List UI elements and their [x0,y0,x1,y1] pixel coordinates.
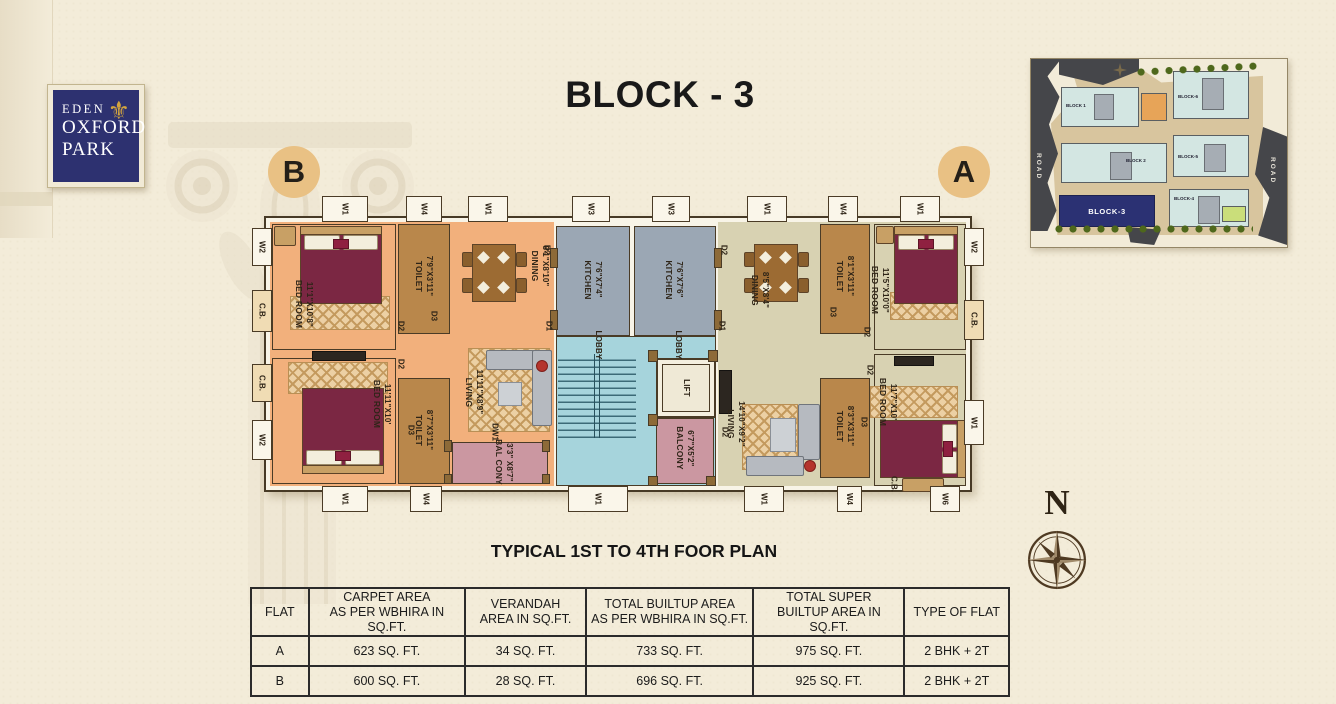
door-d3: D3 [860,417,869,427]
tv-bedroom-b2 [312,351,366,361]
label-bedroom-b2: BED ROOM11'11"X10' [372,380,392,428]
stair-rail [594,354,600,438]
door-d2: D2 [721,427,730,437]
cell-type: 2 BHK + 2T [904,636,1009,666]
label-toilet-a2: TOILET8'3"X3'11" [835,406,855,447]
cell-super-builtup: 925 SQ. FT. [753,666,904,696]
label-living-b: LIVING11'11"X8'9" [464,370,484,415]
cell-builtup: 733 SQ. FT. [586,636,753,666]
compass-rose-icon [1024,527,1090,593]
window-w3: W3 [572,196,610,222]
plant-living-b [536,360,548,372]
cell-super-builtup: 975 SQ. FT. [753,636,904,666]
header-type: TYPE OF FLAT [904,588,1009,636]
flat-b-letter: B [283,154,305,190]
header-carpet: CARPET AREAAS PER WBHIRA IN SQ.FT. [309,588,465,636]
chair-a [798,278,809,293]
label-toilet-a1: TOILET8'1"X3'11" [835,256,855,297]
table-row-flat-b: B 600 SQ. FT. 28 SQ. FT. 696 SQ. FT. 925… [251,666,1009,696]
header-verandah: VERANDAHAREA IN SQ.FT. [465,588,586,636]
header-flat: FLAT [251,588,309,636]
door-d3: D3 [829,307,838,317]
window-w1: W1 [322,486,368,512]
cell-verandah: 34 SQ. FT. [465,636,586,666]
label-bedroom-b1: BED ROOM11'1"X10'8" [294,280,314,328]
label-balcony-common: BALCONY6'7"X5'2" [675,426,695,469]
label-living-a: LIVING14'10"X9'2" [726,401,746,447]
window-w1: W1 [744,486,784,512]
floor-plan-caption: TYPICAL 1ST TO 4TH FOOR PLAN [454,541,814,562]
window-w1: W1 [468,196,508,222]
road-label-left: ROAD [1035,153,1042,180]
page-title: BLOCK - 3 [540,74,780,116]
plant-living-a [804,460,816,472]
cell-carpet: 600 SQ. FT. [309,666,465,696]
chair-b [462,278,473,293]
road-label-right: ROAD [1269,157,1276,184]
header-super-builtup: TOTAL SUPERBUILTUP AREA IN SQ.FT. [753,588,904,636]
coffee-table-b [498,382,522,406]
floor-plan: W1 W4 W1 W3 W3 W1 W4 W1 W1 W4 W1 W1 W4 W… [258,192,998,518]
label-kitchen-a: KITCHEN7'6"X7'6" [664,260,684,299]
label-bedroom-a2: BED ROOM11'7"X10' [878,378,898,426]
chair-b [516,278,527,293]
cell-carpet: 623 SQ. FT. [309,636,465,666]
north-label: N [1022,483,1092,523]
window-w1: W1 [900,196,940,222]
cupboard-cb: C.B. [964,300,984,340]
window-w1: W1 [964,400,984,445]
window-w2: W2 [252,228,272,266]
window-w2: W2 [964,228,984,266]
fleur-de-lis-icon: ⚜ [108,96,130,126]
header-builtup: TOTAL BUILTUP AREAAS PER WBHIRA IN SQ.FT… [586,588,753,636]
door-d2: D2 [720,245,729,255]
nightstand-b1 [274,226,296,246]
door-d3: D3 [430,311,439,321]
tree-row-bottom [1053,223,1253,235]
cell-flat: A [251,636,309,666]
cell-type: 2 BHK + 2T [904,666,1009,696]
window-w4: W4 [406,196,442,222]
label-toilet-b1: TOILET7'9"X3'11" [414,256,434,297]
window-w4: W4 [837,486,862,512]
logo-line-park: PARK [62,139,139,161]
door-d2: D2 [863,327,872,337]
chair-b [462,252,473,267]
label-toilet-b2: TOILET8'7"X3'11" [414,410,434,451]
door-d3: D3 [407,425,416,435]
label-balcony-b: BAL CONY3'3" X8'7" [494,439,514,485]
site-block-2: BLOCK 2 [1061,143,1167,183]
site-block-5: BLOCK-5 [1173,135,1249,177]
bed-bedroom-a1 [894,226,958,304]
chair-a [798,252,809,267]
sofa-living-a [746,456,804,476]
wall-pillar [444,474,452,484]
window-w1: W1 [568,486,628,512]
flat-a-marker: A [938,146,990,198]
site-green-unit [1222,206,1246,222]
table-header-row: FLAT CARPET AREAAS PER WBHIRA IN SQ.FT. … [251,588,1009,636]
wall-pillar [542,474,550,484]
cupboard-cb-label: C.B. [890,476,899,492]
label-dining-a: DINING8'5"X8'4" [750,272,770,308]
site-block-1: BLOCK 1 [1061,87,1139,127]
label-lift: LIFT [681,379,691,397]
flat-b-marker: B [268,146,320,198]
wall-pillar [542,440,550,452]
brand-logo: ⚜ EDEN OXFORD PARK [47,84,145,188]
wall-pillar [648,414,658,426]
coffee-table-a [770,418,796,452]
door-d2: D2 [543,245,552,255]
cupboard-cb: C.B. [252,290,272,332]
site-block-6: BLOCK-6 [1173,71,1249,119]
wall-pillar [708,350,718,362]
cell-verandah: 28 SQ. FT. [465,666,586,696]
label-lobby: LOBBY [593,331,603,360]
window-w1: W1 [322,196,368,222]
window-w6: W6 [930,486,960,512]
site-block-4: BLOCK-4 [1169,189,1249,227]
window-w1: W1 [747,196,787,222]
door-dw1: DW1 [491,423,500,441]
wall-pillar [706,476,716,486]
wall-pillar [648,350,658,362]
tv-bedroom-a2 [894,356,934,366]
poster: ⚜ EDEN OXFORD PARK BLOCK - 3 TYPICAL 1ST… [0,0,1336,704]
cell-builtup: 696 SQ. FT. [586,666,753,696]
table-row-flat-a: A 623 SQ. FT. 34 SQ. FT. 733 SQ. FT. 975… [251,636,1009,666]
area-table: FLAT CARPET AREAAS PER WBHIRA IN SQ.FT. … [250,587,1010,697]
label-kitchen-b: KITCHEN7'6"X7'4" [583,260,603,299]
site-annex [1141,93,1167,121]
cell-flat: B [251,666,309,696]
sofa-living-a [798,404,820,460]
label-bedroom-a1: BED ROOM11'5"X10'0" [870,266,890,314]
door-d2: D2 [397,359,406,369]
chair-a [744,252,755,267]
window-w2: W2 [252,420,272,460]
window-w3: W3 [652,196,690,222]
door-d1: D1 [545,321,554,331]
door-d2: D2 [397,321,406,331]
site-map-inset: BLOCK 1 BLOCK 2 BLOCK-3 BLOCK-6 BLOCK-5 … [1030,58,1288,248]
label-lobby: LOBBY [673,331,683,360]
door-d2: D2 [866,365,875,375]
door-d1: D1 [718,321,727,331]
wall-pillar [444,440,452,452]
dining-table-b [472,244,516,302]
wall-pillar [648,476,658,486]
nightstand-a1 [876,226,894,244]
cupboard-cb: C.B. [252,364,272,402]
chair-b [516,252,527,267]
left-pillar-band [0,192,52,206]
bed-bedroom-a2 [880,420,966,478]
flat-a-letter: A [953,154,975,190]
window-w4: W4 [410,486,442,512]
window-w4: W4 [828,196,858,222]
